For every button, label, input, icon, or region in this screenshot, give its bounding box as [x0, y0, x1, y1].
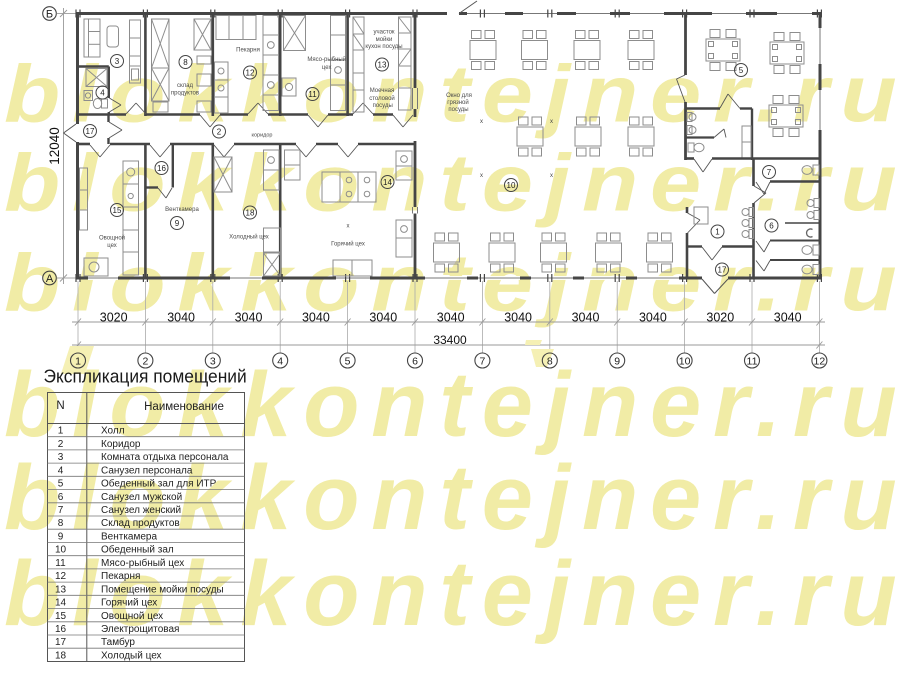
svg-text:4: 4 [277, 356, 283, 368]
svg-text:Овощной: Овощной [99, 235, 125, 242]
svg-text:Овощной цех: Овощной цех [101, 611, 163, 622]
svg-text:16: 16 [55, 624, 67, 635]
svg-text:кухон посуды: кухон посуды [365, 44, 402, 50]
svg-text:17: 17 [55, 637, 67, 648]
svg-text:3040: 3040 [167, 311, 195, 325]
svg-text:Обеденный зал: Обеденный зал [101, 544, 174, 556]
svg-text:7: 7 [479, 356, 485, 368]
svg-text:Санузел мужской: Санузел мужской [101, 492, 182, 503]
svg-text:12: 12 [814, 356, 826, 368]
svg-text:Коридор: Коридор [101, 439, 141, 450]
svg-text:3040: 3040 [639, 311, 667, 325]
svg-text:Холодный цех: Холодный цех [229, 234, 269, 241]
svg-text:Склад продуктов: Склад продуктов [101, 518, 180, 529]
svg-text:4: 4 [58, 465, 64, 476]
svg-text:коридор: коридор [252, 133, 273, 139]
svg-text:9: 9 [614, 356, 620, 368]
svg-text:3040: 3040 [302, 311, 330, 325]
svg-text:12: 12 [246, 69, 255, 78]
svg-text:x: x [480, 173, 483, 179]
svg-text:Окно для: Окно для [446, 93, 472, 99]
svg-text:столовой: столовой [369, 95, 395, 102]
svg-text:15: 15 [113, 206, 122, 215]
svg-text:17: 17 [86, 127, 95, 136]
svg-text:5: 5 [739, 66, 744, 75]
svg-text:13: 13 [55, 584, 67, 595]
svg-text:Помещение мойки посуды: Помещение мойки посуды [101, 584, 224, 595]
svg-text:Венткамера: Венткамера [165, 207, 199, 213]
svg-text:Пекарня: Пекарня [236, 48, 260, 54]
svg-text:12: 12 [55, 571, 67, 582]
svg-text:x: x [347, 224, 350, 230]
svg-text:16: 16 [157, 164, 166, 173]
svg-text:8: 8 [547, 356, 553, 368]
svg-text:18: 18 [246, 209, 255, 218]
svg-text:11: 11 [308, 90, 317, 99]
svg-text:Обеденный зал для ИТР: Обеденный зал для ИТР [101, 478, 217, 490]
svg-text:Электрощитовая: Электрощитовая [101, 624, 179, 635]
svg-text:продуктов: продуктов [171, 91, 199, 97]
svg-text:цех: цех [322, 65, 332, 71]
svg-text:7: 7 [767, 168, 772, 177]
svg-text:3020: 3020 [100, 311, 128, 325]
svg-text:Холодый цех: Холодый цех [101, 651, 162, 662]
svg-text:10: 10 [55, 545, 67, 556]
svg-text:12040: 12040 [47, 127, 62, 165]
svg-text:1: 1 [58, 426, 64, 437]
svg-text:Б: Б [46, 9, 53, 21]
svg-text:2: 2 [58, 439, 64, 450]
svg-text:14: 14 [55, 598, 67, 609]
svg-text:цех: цех [107, 243, 117, 249]
svg-text:Пекарня: Пекарня [101, 571, 140, 582]
svg-text:Комната отдыха персонала: Комната отдыха персонала [101, 452, 229, 463]
svg-text:33400: 33400 [433, 333, 467, 347]
svg-text:11: 11 [747, 356, 758, 368]
svg-text:N: N [56, 400, 64, 412]
svg-text:3020: 3020 [706, 311, 734, 325]
svg-text:Моечная: Моечная [370, 88, 395, 94]
svg-text:Санузел женский: Санузел женский [101, 505, 181, 516]
svg-text:6: 6 [769, 222, 774, 231]
svg-text:3040: 3040 [504, 311, 532, 325]
svg-text:6: 6 [412, 356, 418, 368]
svg-text:5: 5 [345, 356, 351, 368]
svg-text:3: 3 [115, 57, 120, 66]
svg-text:3040: 3040 [572, 311, 600, 325]
svg-text:17: 17 [718, 266, 727, 275]
svg-text:мойки: мойки [376, 36, 393, 43]
svg-text:Тамбур: Тамбур [101, 636, 135, 648]
svg-text:13: 13 [378, 61, 387, 70]
svg-text:x: x [480, 119, 483, 125]
svg-text:10: 10 [507, 181, 516, 190]
svg-text:3040: 3040 [235, 311, 263, 325]
svg-text:A: A [46, 273, 54, 285]
svg-text:9: 9 [175, 219, 180, 228]
svg-text:6: 6 [58, 492, 64, 503]
svg-text:склад: склад [177, 83, 194, 89]
svg-text:1: 1 [715, 228, 720, 237]
svg-text:3040: 3040 [774, 311, 802, 325]
svg-text:11: 11 [55, 558, 66, 569]
svg-text:x: x [550, 119, 553, 125]
svg-text:14: 14 [383, 178, 392, 187]
svg-text:Мясо-рыбный: Мясо-рыбный [307, 56, 346, 63]
svg-text:8: 8 [58, 518, 64, 529]
svg-text:2: 2 [217, 128, 222, 137]
svg-text:x: x [550, 173, 553, 179]
svg-text:Венткамера: Венткамера [101, 531, 157, 542]
svg-text:грязной: грязной [447, 99, 468, 106]
svg-text:Холл: Холл [101, 426, 125, 437]
svg-text:4: 4 [100, 89, 105, 98]
svg-text:Санузел персонала: Санузел персонала [101, 465, 193, 476]
svg-text:5: 5 [58, 479, 64, 490]
svg-text:3040: 3040 [369, 311, 397, 325]
svg-text:7: 7 [58, 505, 64, 516]
svg-text:Горячий цех: Горячий цех [331, 241, 365, 248]
svg-text:8: 8 [183, 58, 188, 67]
svg-text:Наименование: Наименование [144, 401, 224, 413]
svg-text:посуды: посуды [448, 107, 468, 113]
svg-text:Мясо-рыбный цех: Мясо-рыбный цех [101, 557, 184, 569]
svg-text:участок: участок [373, 30, 394, 36]
svg-text:Экспликация помещений: Экспликация помещений [44, 366, 247, 387]
svg-text:3040: 3040 [437, 311, 465, 325]
svg-text:10: 10 [679, 356, 691, 368]
svg-text:15: 15 [55, 611, 67, 622]
svg-text:9: 9 [58, 531, 64, 542]
svg-text:18: 18 [55, 651, 67, 662]
svg-text:посуды: посуды [373, 103, 393, 109]
svg-text:Горячий цех: Горячий цех [101, 598, 157, 609]
svg-text:3: 3 [58, 452, 64, 463]
